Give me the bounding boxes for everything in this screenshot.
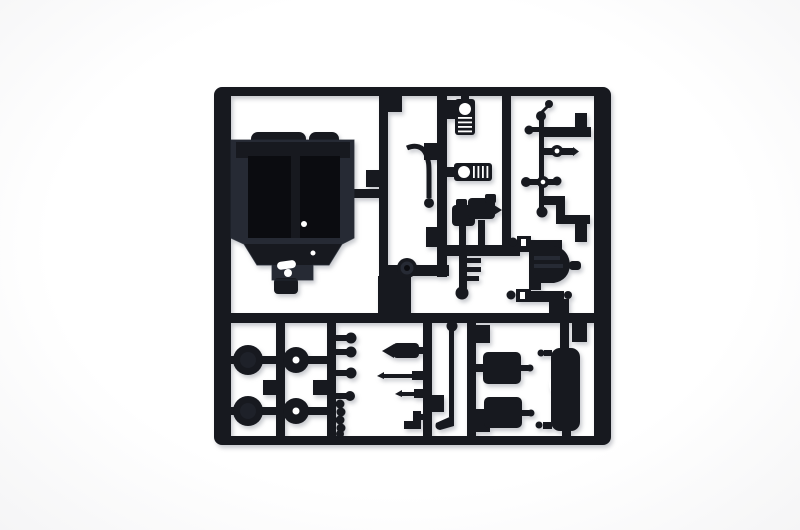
photo-canvas	[0, 0, 800, 530]
carburetor-a-nub	[456, 199, 467, 207]
runner-block	[378, 276, 411, 316]
comb-stem	[459, 256, 467, 290]
gate-ball	[538, 350, 545, 357]
notch	[476, 325, 490, 343]
comb-peg	[467, 267, 481, 272]
sprue	[214, 87, 611, 445]
rod-ball	[536, 111, 546, 121]
hub-hole	[293, 357, 300, 364]
ball-peg	[345, 391, 355, 401]
diff-gate-ball	[564, 291, 572, 299]
sprue-photo	[0, 0, 800, 530]
gate	[560, 320, 569, 350]
seat-cushion	[484, 397, 522, 428]
ball-peg	[346, 368, 357, 379]
gate	[419, 414, 424, 420]
tie-rod-ring-hole	[555, 149, 560, 154]
ball-peg	[346, 333, 357, 344]
gate	[417, 347, 424, 354]
seat-cushion	[483, 352, 521, 384]
wheel-face	[240, 352, 256, 368]
stem	[478, 220, 485, 247]
divider-lower-1	[276, 320, 285, 438]
rod-ball-left	[525, 126, 534, 135]
muffler-body	[393, 343, 419, 358]
canister-boss-hole	[459, 103, 471, 115]
notch	[313, 380, 327, 395]
notch	[575, 113, 587, 132]
gate-ball	[527, 365, 534, 372]
muffler-nose	[382, 344, 394, 358]
grommet-center	[404, 265, 410, 271]
pipe-shaft	[449, 330, 454, 417]
carburetor-b-nub	[485, 194, 496, 203]
exhaust-pipe-part	[436, 321, 458, 431]
corner-bracket-part	[404, 411, 424, 429]
wheel-face	[240, 403, 256, 419]
peg-comb-part	[456, 256, 482, 300]
tie-rod-tip	[573, 147, 579, 156]
cab-hole	[301, 221, 307, 227]
diff-shaft	[569, 261, 581, 270]
seat-cushion-parts	[476, 352, 535, 428]
ball-chain-part	[336, 400, 346, 439]
diff-frame-leg	[549, 299, 569, 314]
pipe-foot	[436, 415, 455, 430]
needle-tip	[377, 372, 384, 379]
diff-housing-part	[529, 243, 581, 299]
gate	[476, 364, 484, 372]
hub-hole	[293, 408, 300, 415]
canister-horizontal-part	[446, 163, 492, 181]
cab-hole	[311, 251, 316, 256]
bracket-foot	[404, 421, 415, 429]
gate-ball	[528, 410, 535, 417]
ball-peg	[346, 347, 357, 358]
comb-peg	[467, 258, 481, 263]
diff-detail	[534, 256, 560, 260]
divider-lower-2	[327, 320, 336, 438]
door-panel	[551, 348, 580, 431]
rod-ball-small	[545, 100, 553, 108]
gate	[476, 409, 484, 417]
ball-peg-parts	[336, 333, 357, 402]
needle-base	[412, 371, 424, 380]
hose-ball-end	[424, 198, 434, 208]
gate	[543, 422, 552, 429]
panel-waist	[549, 378, 551, 392]
divider-upper-right	[502, 94, 511, 254]
notch	[388, 96, 402, 112]
rod-ball-left	[521, 177, 531, 187]
gate	[544, 350, 552, 356]
peg-slot	[520, 292, 525, 299]
notch	[263, 380, 276, 395]
rod-ring-hole	[541, 180, 546, 185]
needle-rod-parts	[377, 371, 424, 398]
notch	[426, 227, 438, 247]
tie-rod-ring-part	[543, 145, 579, 157]
notch	[575, 222, 587, 242]
notch	[572, 323, 587, 342]
cab-shell-part	[223, 132, 380, 294]
divider-lower-3	[423, 320, 432, 438]
divider-lower-4	[467, 320, 476, 438]
hose-curve	[407, 146, 429, 198]
carburetor-b-spike	[494, 205, 502, 215]
comb-ball	[456, 287, 469, 300]
muffler-part	[382, 343, 424, 358]
peg-ball	[509, 238, 518, 247]
peg-ball	[507, 291, 516, 300]
gate	[352, 189, 380, 198]
needle-tip	[395, 390, 402, 397]
cab-center-pillar	[291, 154, 300, 238]
notch	[432, 395, 444, 412]
canister-boss-hole	[458, 166, 470, 178]
needle-base	[414, 389, 424, 398]
cab-window-left	[248, 156, 294, 238]
peg-slot	[521, 239, 526, 246]
rod-ball-right	[553, 177, 562, 186]
cab-hole	[284, 269, 292, 277]
comb-peg	[467, 276, 479, 281]
pipe-ball-top	[447, 321, 458, 332]
rod-ball-bottom	[537, 207, 548, 218]
diff-detail	[534, 264, 563, 268]
carburetor-parts	[452, 194, 502, 247]
stem	[459, 225, 466, 247]
grommet-part	[397, 258, 417, 278]
canister-vertical-part	[455, 92, 475, 135]
gate-ball	[536, 422, 543, 429]
notch	[366, 170, 379, 187]
